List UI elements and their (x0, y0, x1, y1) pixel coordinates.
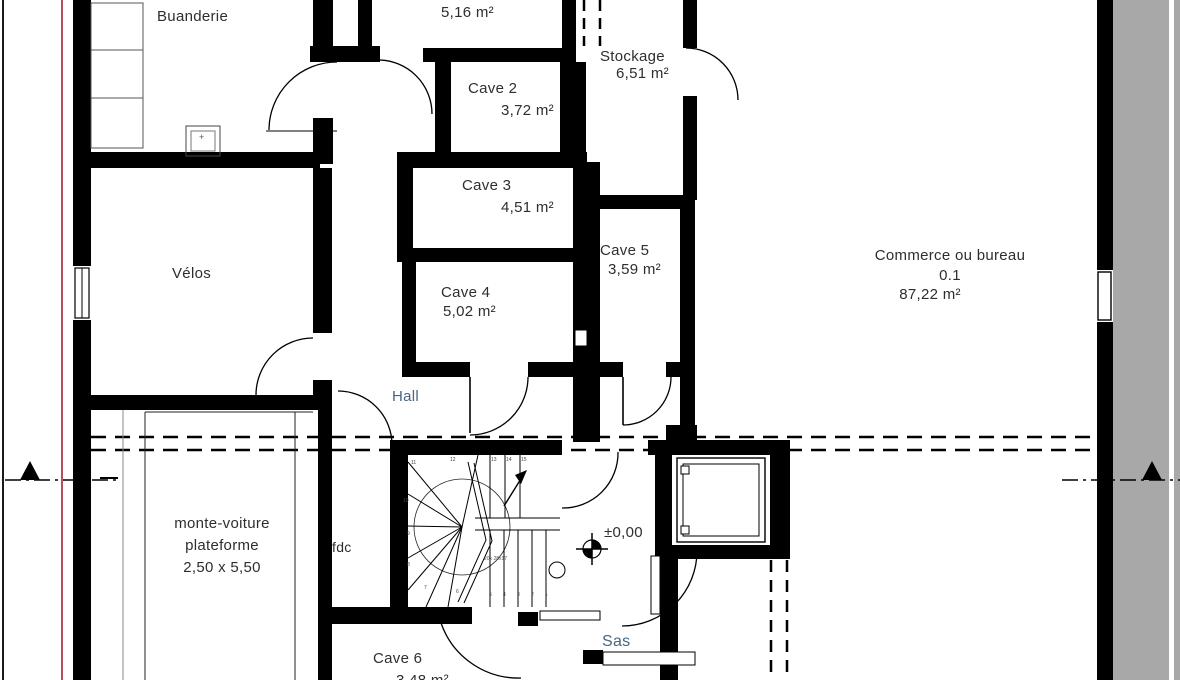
stair-tread-number: 14 (506, 457, 512, 463)
stair-tread-number: 5 (489, 592, 492, 598)
elevator (672, 441, 770, 559)
room-dimensions-monte-voiture: 2,50 x 5,50 (147, 559, 297, 576)
room-label-fdc: fdc (332, 539, 352, 555)
room-label-monte-voiture: monte-voiture (147, 515, 297, 532)
stair-tread-number: 12 (450, 457, 456, 463)
stair-tread-number: 8 (407, 562, 410, 568)
level-marker-value: ±0,00 (604, 524, 643, 541)
stair-tread-number: 6 (456, 589, 459, 595)
meter-box-symbol: + (199, 132, 204, 142)
room-label-hall: Hall (392, 388, 419, 405)
staircase (408, 455, 565, 607)
room-label-sas: Sas (602, 633, 630, 651)
stair-tread-number: 10 (403, 498, 409, 504)
floor-plan: Buanderie 5,16 m² Stockage 6,51 m² Cave … (0, 0, 1180, 680)
room-label-commerce: Commerce ou bureau (860, 247, 1040, 264)
room-label-cave3: Cave 3 (462, 177, 511, 194)
section-arrow-left-icon (20, 461, 40, 480)
room-label-cave4: Cave 4 (441, 284, 490, 301)
site-boundaries (2, 0, 63, 680)
stair-tread-number: 4 (503, 592, 506, 598)
room-label-velos: Vélos (172, 265, 211, 282)
stair-tread-number: 13 (491, 457, 497, 463)
room-area-stockage: 6,51 m² (616, 65, 669, 82)
room-area-cave2: 3,72 m² (501, 102, 554, 119)
stair-note: 20x 28x17 (484, 556, 507, 562)
room-unit-commerce: 0.1 (860, 267, 1040, 284)
stair-tread-number: 9 (407, 531, 410, 537)
room-label-stockage: Stockage (600, 48, 665, 65)
fixtures (91, 3, 313, 680)
stair-tread-number: 15 (521, 457, 527, 463)
room-area-cave3: 4,51 m² (501, 199, 554, 216)
room-label-cave2: Cave 2 (468, 80, 517, 97)
stair-tread-number: 2 (531, 592, 534, 598)
room-label-cave6: Cave 6 (373, 650, 422, 667)
room-area-cave1: 5,16 m² (441, 4, 494, 21)
room-label-buanderie: Buanderie (157, 8, 228, 25)
stair-tread-number: 7 (424, 585, 427, 591)
section-markers (5, 461, 1180, 480)
stair-tread-number: 1 (545, 592, 548, 598)
stair-tread-number: 11 (411, 460, 416, 466)
room-label-cave5: Cave 5 (600, 242, 649, 259)
walls (73, 0, 1113, 680)
room-area-cave6: 3,48 m² (396, 672, 449, 680)
stair-tread-number: 3 (517, 592, 520, 598)
page-margin (1113, 0, 1180, 680)
plan-graphics (0, 0, 1180, 680)
room-area-commerce: 87,22 m² (855, 286, 1005, 303)
room-label-plateforme: plateforme (147, 537, 297, 554)
room-area-cave5: 3,59 m² (608, 261, 661, 278)
room-area-cave4: 5,02 m² (443, 303, 496, 320)
